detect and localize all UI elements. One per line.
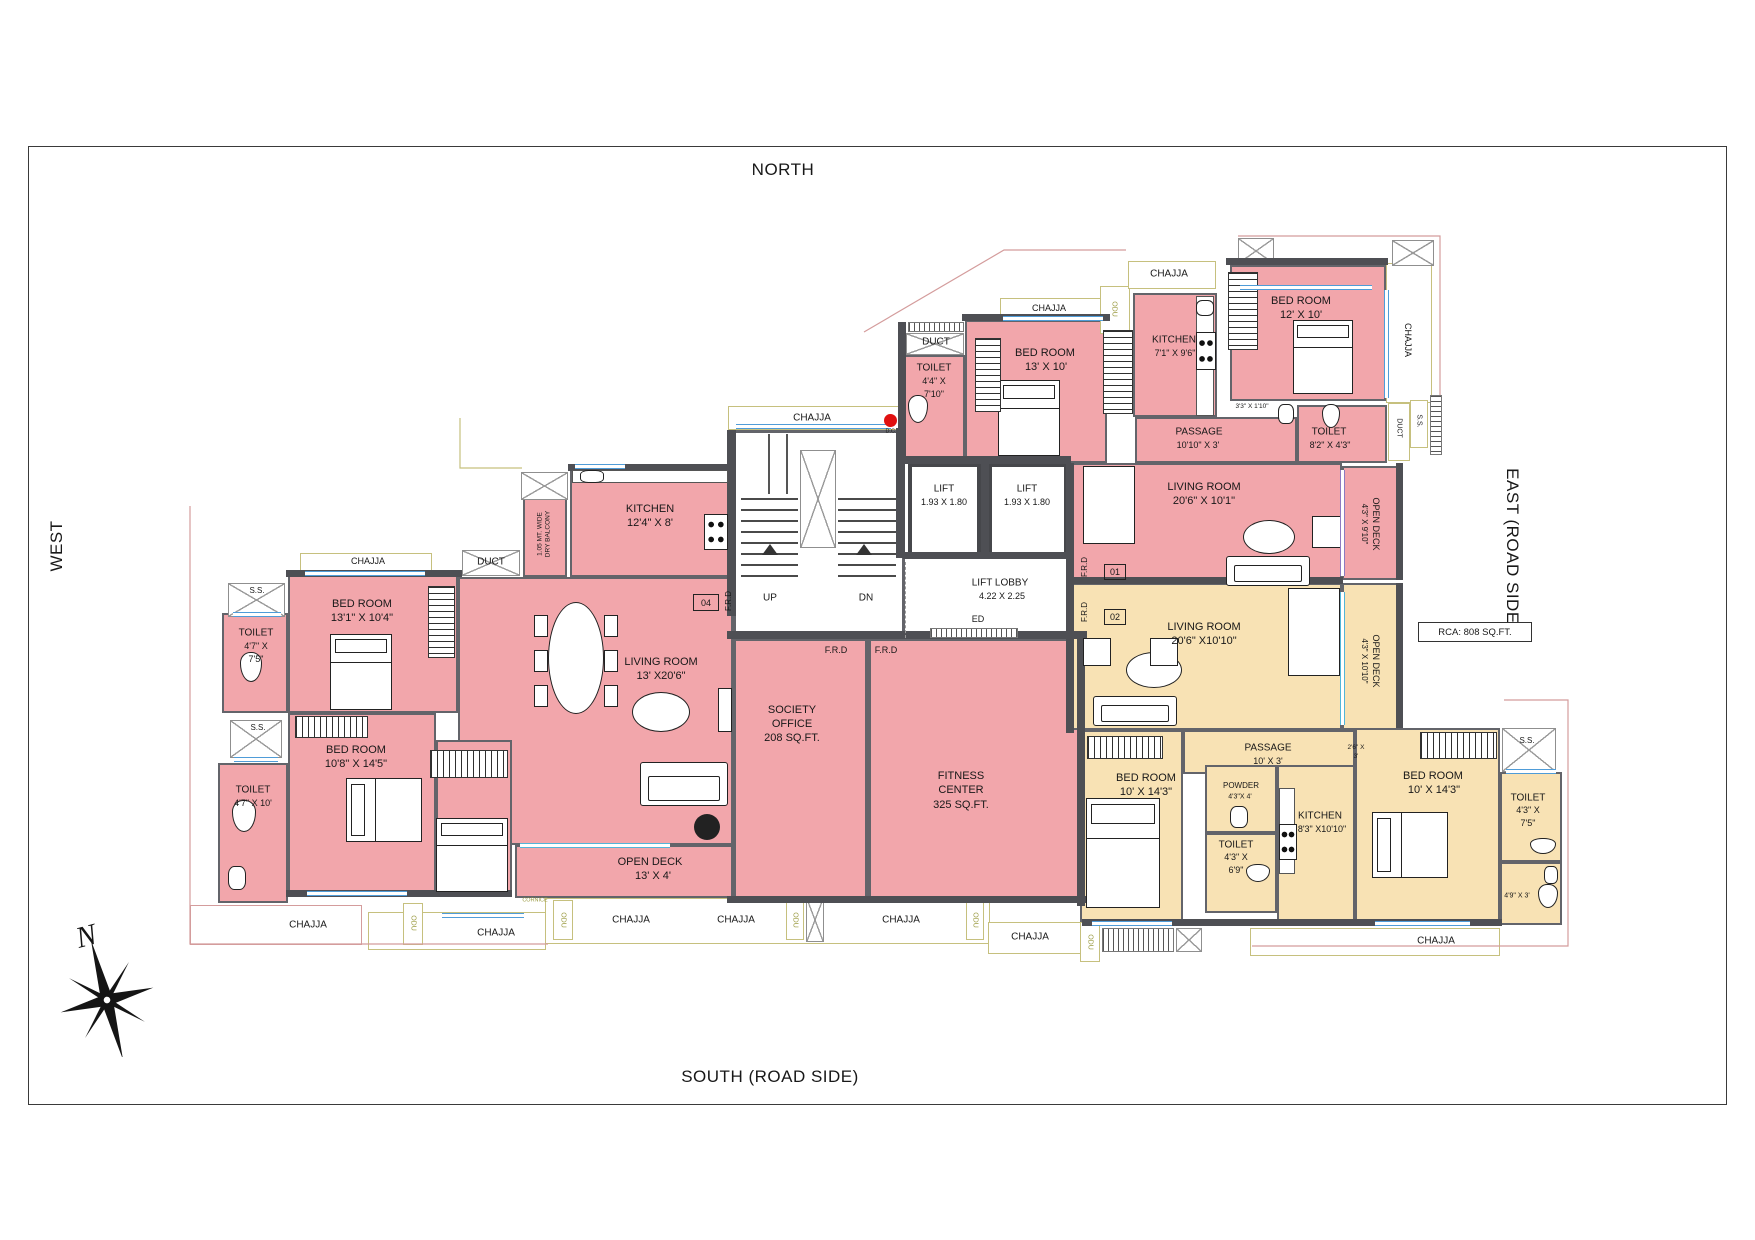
wall — [1226, 258, 1388, 265]
room-dims: 13' X 10' — [1025, 360, 1067, 374]
room-dims: 13' X20'6" — [636, 669, 685, 683]
stair-mid-landing — [800, 450, 836, 548]
ed-grille — [930, 628, 1018, 638]
room-label: TOILET — [1511, 792, 1546, 805]
lift-label: LIFT — [934, 483, 955, 496]
ss-label: S.S. — [249, 586, 264, 596]
unit-04-number: 04 — [701, 598, 711, 608]
shaft — [1176, 928, 1202, 952]
armchair — [1243, 520, 1295, 554]
room-dims: 4'3"X 4' — [1228, 792, 1251, 801]
window — [1375, 921, 1470, 926]
frd-label: F.R.D — [1080, 557, 1090, 577]
room-label: PASSAGE — [1244, 742, 1291, 755]
room-label: BED ROOM — [1403, 769, 1463, 783]
window — [307, 891, 407, 896]
odu-label: ODU — [558, 912, 567, 928]
dry-balcony-line2: DRY BALCONY — [545, 511, 553, 557]
deck-dims: 4'3" X 10'10" — [1359, 634, 1369, 687]
room-dims: 10'8" X 14'5" — [325, 757, 387, 771]
unit-02-number: 02 — [1110, 612, 1120, 622]
room-society-office — [733, 638, 868, 900]
room-label: BED ROOM — [1271, 294, 1331, 308]
window — [1092, 921, 1172, 926]
room-label: TOILET — [236, 784, 271, 797]
lift-dims: 1.93 X 1.80 — [1004, 497, 1050, 509]
room-label: LIVING ROOM — [624, 655, 697, 669]
lift-dims: 1.93 X 1.80 — [921, 497, 967, 509]
window — [233, 612, 281, 617]
society-label: OFFICE — [772, 717, 812, 731]
compass-n-label: N — [71, 917, 102, 955]
shaft — [806, 898, 824, 942]
deck-label: OPEN DECK 4'3" X 10'10" — [1359, 634, 1381, 687]
stair-rail — [768, 434, 770, 494]
room-dims: 7'5" — [1521, 818, 1536, 830]
window — [1240, 285, 1372, 290]
dry-balcony-line1: 1.05 MT. WIDE — [537, 511, 545, 557]
wardrobe — [428, 586, 455, 658]
kitchen-sink-icon — [580, 470, 604, 483]
deck-name: OPEN DECK — [1369, 634, 1381, 687]
stair-rail — [786, 434, 788, 494]
stove-icon — [1196, 332, 1216, 370]
side-table — [1312, 516, 1342, 548]
shaft — [1392, 240, 1434, 266]
up-label: UP — [763, 592, 777, 605]
room-label: BED ROOM — [1116, 771, 1176, 785]
chajja-label: CHAJJA — [1011, 931, 1049, 944]
window — [520, 843, 670, 848]
room-dims: 10' X 14'3" — [1120, 785, 1172, 799]
room-label: TOILET — [239, 627, 274, 640]
stair-arrow-icon — [762, 544, 778, 555]
window — [1340, 592, 1345, 725]
bed — [1086, 798, 1160, 908]
rca-note-box: RCA: 808 SQ.FT. — [1418, 622, 1532, 642]
sink-icon — [1230, 806, 1248, 828]
chajja-label: CHAJJA — [1401, 323, 1413, 357]
room-dims: 7'5" — [249, 654, 264, 666]
chajja-label: CHAJJA — [289, 919, 327, 932]
frd-label: F.R.D — [825, 645, 848, 657]
dn-label: DN — [859, 592, 873, 605]
small-dims: 2'6" X — [1348, 744, 1365, 752]
wall — [1396, 583, 1403, 730]
fitness-label: FITNESS — [938, 769, 984, 783]
compass-rose-icon: N — [35, 912, 175, 1057]
room-label: KITCHEN — [1152, 334, 1196, 347]
tv-unit — [718, 688, 732, 732]
grille — [1430, 395, 1442, 455]
room-dims: 4'7" X 10' — [234, 798, 272, 810]
ss-shaft — [1502, 728, 1556, 772]
sofa — [1093, 696, 1177, 726]
rca-note-text: RCA: 808 SQ.FT. — [1438, 627, 1511, 638]
wall — [898, 322, 906, 462]
small-dims: 4'9" X 3' — [1504, 891, 1529, 900]
wall — [981, 463, 989, 559]
room-label: OPEN DECK — [618, 855, 683, 869]
ss-label: S.S. — [1519, 736, 1534, 746]
rail-grille — [1102, 928, 1174, 952]
wall — [1396, 463, 1403, 580]
sink-icon — [1278, 404, 1294, 424]
lobby-boundary — [905, 562, 906, 638]
unit-01-tag: 01 — [1104, 564, 1126, 580]
room-dims: 8'2" X 4'3" — [1310, 440, 1351, 452]
ss-label: S.S. — [250, 723, 265, 733]
stove-icon — [1279, 824, 1297, 860]
wardrobe — [430, 750, 508, 778]
room-label: BED ROOM — [332, 597, 392, 611]
sink-icon — [1544, 866, 1558, 884]
dc-point-icon — [884, 414, 897, 427]
room-label: LIVING ROOM — [1167, 620, 1240, 634]
room-label: PASSAGE — [1175, 426, 1222, 439]
lobby-label: LIFT LOBBY — [972, 577, 1029, 590]
cornice-label: CORNICE — [522, 897, 547, 904]
room-label: TOILET — [917, 362, 952, 375]
deck-dims: 4'3" X 9'10" — [1359, 497, 1369, 550]
room-dims: 10' X 3' — [1253, 756, 1282, 768]
odu-label: ODU — [1085, 934, 1094, 950]
duct-label: DUCT — [477, 556, 505, 569]
window — [1506, 769, 1556, 774]
wall — [727, 430, 736, 616]
chajja-label: CHAJJA — [477, 927, 515, 940]
wall — [727, 896, 1087, 903]
sink-icon — [228, 866, 246, 890]
room-dims: 20'6" X 10'1" — [1173, 494, 1235, 508]
frd-label: F.R.D — [875, 645, 898, 657]
chair — [604, 685, 618, 707]
room-dims: 4'7" X — [244, 641, 267, 653]
west-label: WEST — [46, 520, 68, 571]
society-dims: 208 SQ.FT. — [764, 731, 820, 745]
lift-2 — [988, 463, 1068, 559]
room-dims: 13' X 4' — [635, 869, 671, 883]
chair — [604, 615, 618, 637]
bed — [1372, 812, 1448, 878]
unit-02-tag: 02 — [1104, 609, 1126, 625]
window — [1340, 470, 1345, 576]
south-label: SOUTH (ROAD SIDE) — [681, 1066, 859, 1088]
dc-label: D.C. — [886, 428, 897, 435]
chair — [534, 650, 548, 672]
sofa — [640, 762, 728, 806]
wall — [1066, 463, 1074, 733]
wardrobe — [975, 338, 1001, 412]
chajja-label: CHAJJA — [717, 914, 755, 927]
lift-label: LIFT — [1017, 483, 1038, 496]
stove-icon — [704, 514, 728, 550]
ed-label: ED — [972, 614, 985, 626]
fitness-dims: 325 SQ.FT. — [933, 798, 989, 812]
odu-label: ODU — [1109, 301, 1118, 317]
chajja-label: CHAJJA — [1150, 268, 1188, 281]
room-dims: 13'1" X 10'4" — [331, 611, 393, 625]
armchair — [632, 692, 690, 732]
room-dims: 8'3" X10'10" — [1298, 824, 1346, 836]
society-label: SOCIETY — [768, 703, 816, 717]
chajja-strip — [1250, 928, 1500, 956]
wall — [1077, 638, 1085, 906]
chajja-label: CHAJJA — [793, 412, 831, 425]
wall — [727, 631, 1087, 639]
chair — [534, 685, 548, 707]
grille — [908, 322, 964, 332]
chajja-label: CHAJJA — [351, 556, 385, 568]
east-label: EAST (ROAD SIDE) — [1501, 468, 1523, 630]
dining-set — [1083, 466, 1135, 544]
wardrobe — [1103, 330, 1133, 414]
room-dims: 4'3" X — [1516, 805, 1539, 817]
bed — [998, 380, 1060, 456]
room-label: TOILET — [1312, 426, 1347, 439]
chajja-label: CHAJJA — [882, 914, 920, 927]
bed — [330, 634, 392, 710]
chajja-strip — [190, 905, 362, 945]
stair-arrow-icon — [856, 544, 872, 555]
small-dims: 3'3" X 1'10" — [1235, 403, 1268, 411]
dry-balcony-label: 1.05 MT. WIDE DRY BALCONY — [537, 511, 554, 557]
room-dims: 20'6" X10'10" — [1171, 634, 1236, 648]
kitchen-sink-icon — [1196, 300, 1214, 316]
room-dims: 12' X 10' — [1280, 308, 1322, 322]
duct-label: DUCT — [922, 336, 950, 349]
deck-name: OPEN DECK — [1369, 497, 1381, 550]
fitness-label: CENTER — [938, 783, 983, 797]
wardrobe — [1087, 736, 1163, 759]
window — [305, 571, 425, 576]
wall — [903, 552, 1071, 559]
window — [1003, 316, 1103, 321]
small-dims: 3' — [1354, 753, 1359, 761]
stair-treads — [741, 498, 798, 586]
wardrobe — [1228, 272, 1258, 350]
room-dims: 10' X 14'3" — [1408, 783, 1460, 797]
lobby-dims: 4.22 X 2.25 — [979, 591, 1025, 603]
odu-label: ODU — [970, 912, 979, 928]
bed — [346, 778, 422, 842]
room-label: TOILET — [1219, 839, 1254, 852]
room-label: BED ROOM — [326, 743, 386, 757]
room-dims: 6'9" — [1229, 865, 1244, 877]
room-label: KITCHEN — [1298, 810, 1342, 823]
frd-label: F.R.D — [1080, 602, 1090, 622]
stair-treads — [838, 498, 896, 586]
side-table — [1083, 638, 1111, 666]
odu-label: ODU — [408, 915, 417, 931]
wardrobe — [295, 716, 368, 738]
room-label: LIVING ROOM — [1167, 480, 1240, 494]
room-label: KITCHEN — [626, 502, 674, 516]
shaft — [521, 472, 568, 500]
window — [575, 464, 625, 469]
unit-01-number: 01 — [1110, 567, 1120, 577]
window — [234, 757, 278, 762]
room-dims: 7'1" X 9'6" — [1155, 348, 1196, 360]
room-dims: 7'10" — [924, 389, 944, 401]
north-label: NORTH — [752, 159, 815, 181]
chair — [534, 615, 548, 637]
window — [1384, 290, 1389, 398]
deck-label: OPEN DECK 4'3" X 9'10" — [1359, 497, 1381, 550]
chajja-label: CHAJJA — [1417, 935, 1455, 948]
room-open-deck-unit04 — [515, 845, 733, 898]
room-dims: 12'4" X 8' — [627, 516, 673, 530]
window — [442, 913, 524, 918]
frd-label: F.R.D — [724, 591, 734, 611]
ss-label: S.S. — [1414, 414, 1423, 427]
room-label: POWDER — [1223, 781, 1259, 791]
chajja-label: CHAJJA — [1032, 303, 1066, 315]
lift-1 — [908, 463, 981, 559]
bed — [436, 818, 508, 892]
bed — [1293, 320, 1353, 394]
sofa — [1226, 556, 1310, 586]
duct-label: DUCT — [1394, 418, 1403, 437]
dining-set — [1288, 588, 1340, 676]
room-label: BED ROOM — [1015, 346, 1075, 360]
room-dims: 10'10" X 3' — [1177, 440, 1220, 452]
unit-04-tag: 04 — [693, 594, 719, 611]
chajja-label: CHAJJA — [612, 914, 650, 927]
window — [736, 424, 891, 429]
wardrobe — [1420, 732, 1497, 759]
chair — [604, 650, 618, 672]
fan-icon — [694, 814, 720, 840]
odu-label: ODU — [790, 912, 799, 928]
floor-plan-sheet: NORTH SOUTH (ROAD SIDE) WEST EAST (ROAD … — [0, 0, 1755, 1240]
dining-table — [548, 602, 604, 714]
room-dims: 4'3" X — [1224, 852, 1247, 864]
room-dims: 4'4" X — [922, 376, 945, 388]
